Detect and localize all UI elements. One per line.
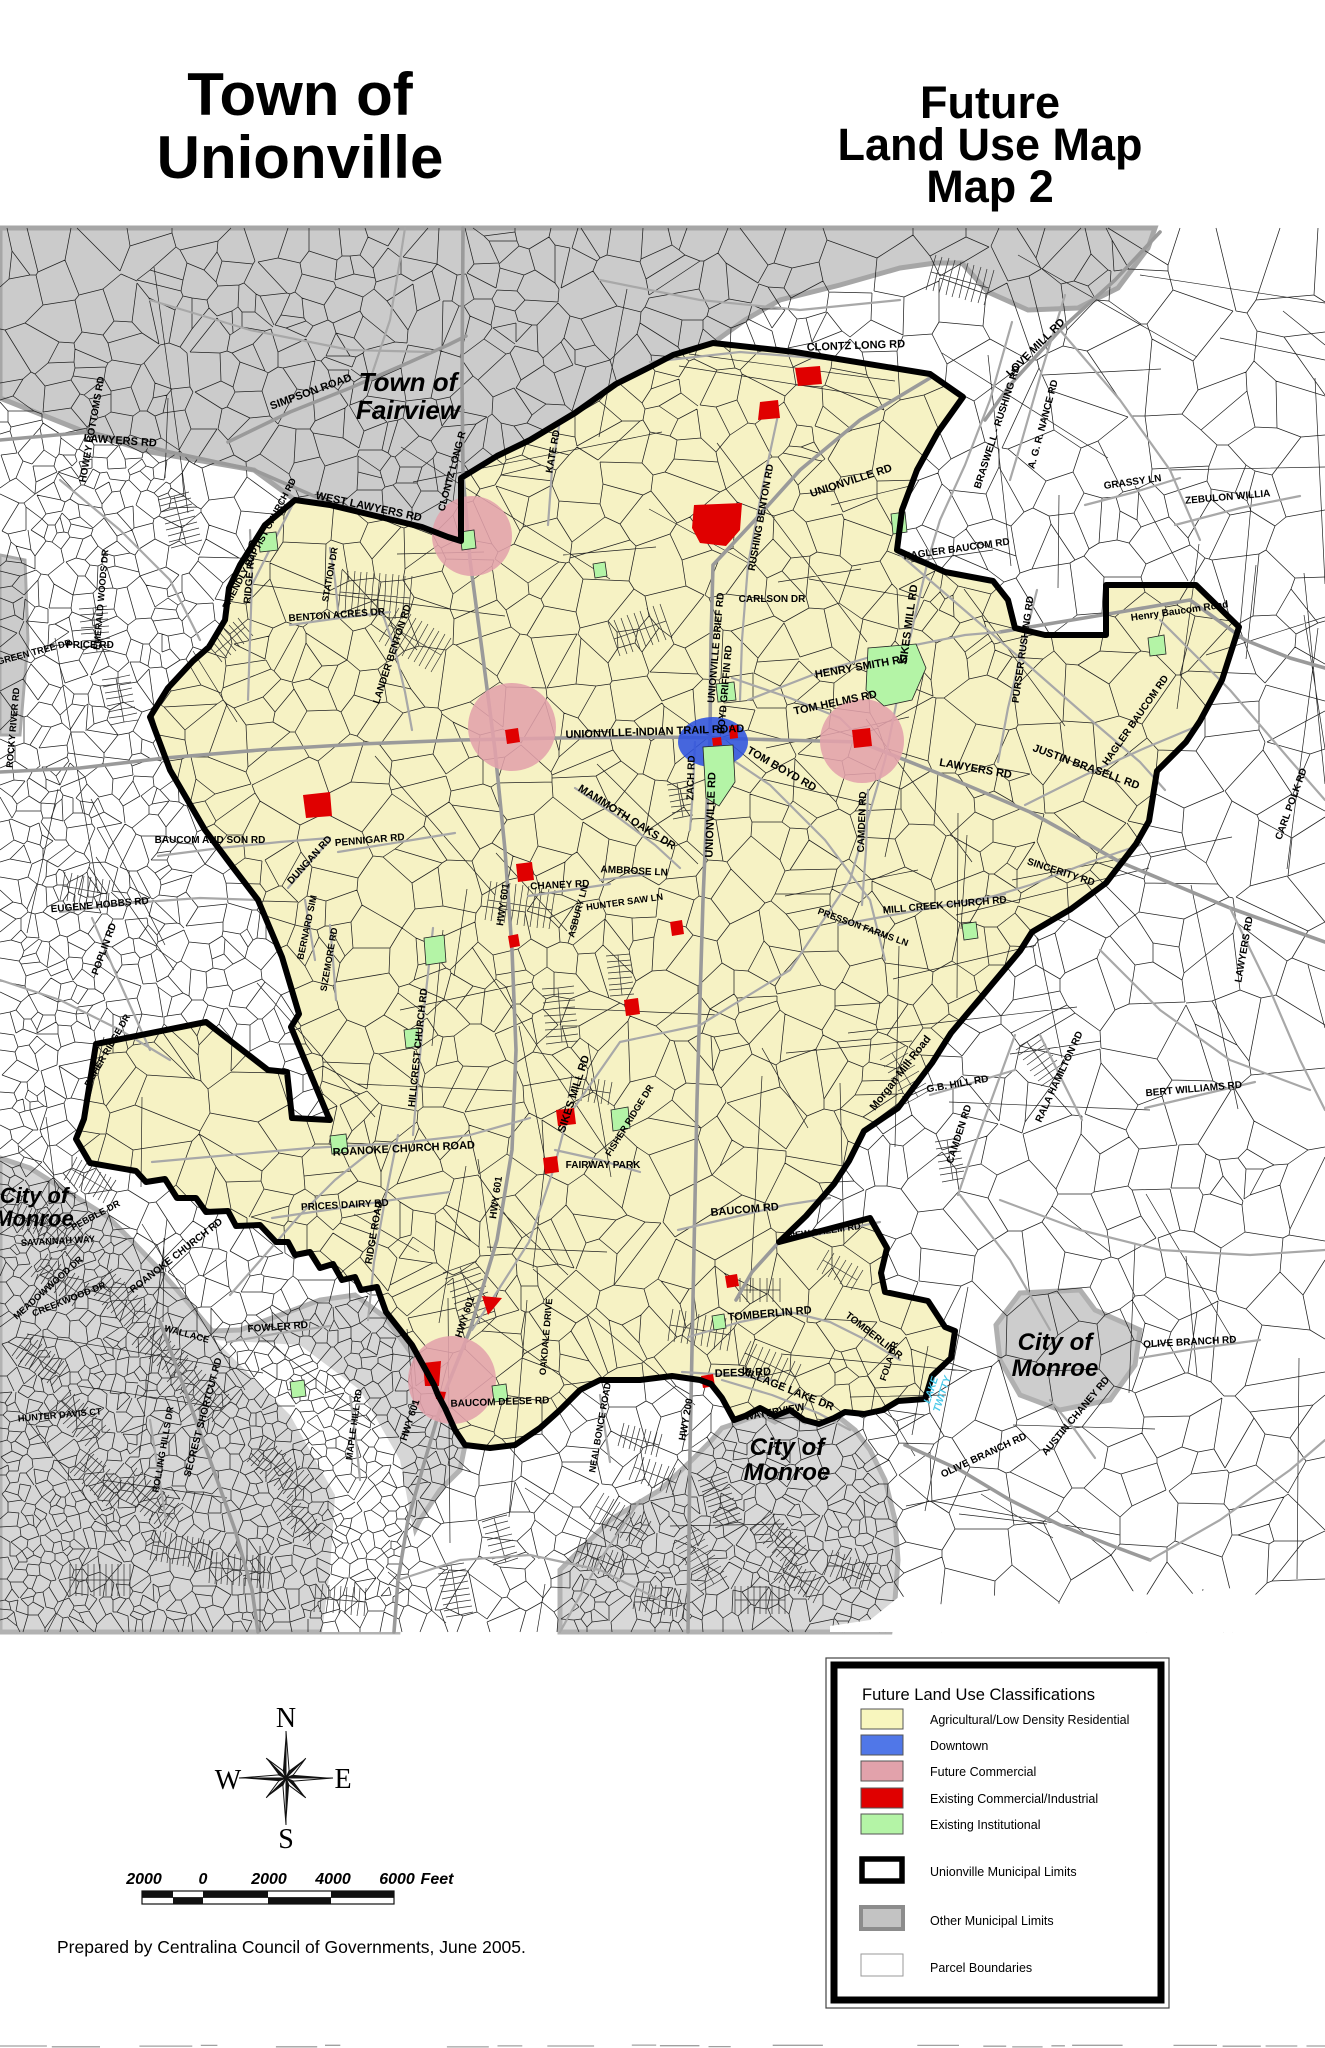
- svg-text:Town of: Town of: [359, 367, 460, 397]
- svg-text:Unionville Municipal Limits: Unionville Municipal Limits: [930, 1865, 1077, 1879]
- svg-text:Prepared by Centralina Council: Prepared by Centralina Council of Govern…: [57, 1937, 526, 1957]
- svg-text:S: S: [278, 1824, 294, 1855]
- svg-text:Fairview: Fairview: [356, 395, 462, 425]
- svg-text:Existing Institutional: Existing Institutional: [930, 1818, 1040, 1832]
- svg-text:Future Commercial: Future Commercial: [930, 1765, 1036, 1779]
- svg-text:Monroe: Monroe: [1012, 1355, 1099, 1382]
- svg-text:PRICE RD: PRICE RD: [66, 640, 114, 651]
- svg-text:City of: City of: [1018, 1329, 1095, 1356]
- svg-text:Map 2: Map 2: [926, 161, 1054, 212]
- svg-text:Monroe: Monroe: [0, 1206, 74, 1231]
- svg-text:W: W: [215, 1765, 242, 1796]
- svg-text:2000: 2000: [250, 1871, 287, 1888]
- svg-text:CARLSON DR: CARLSON DR: [739, 594, 806, 605]
- svg-text:N: N: [276, 1703, 296, 1734]
- svg-text:Parcel Boundaries: Parcel Boundaries: [930, 1961, 1032, 1975]
- svg-text:Future Land Use Classification: Future Land Use Classifications: [862, 1686, 1095, 1704]
- svg-text:City of: City of: [0, 1183, 71, 1208]
- svg-text:Existing Commercial/Industrial: Existing Commercial/Industrial: [930, 1792, 1098, 1806]
- svg-text:Downtown: Downtown: [930, 1739, 988, 1753]
- svg-text:Town of: Town of: [187, 61, 413, 128]
- svg-text:4000: 4000: [314, 1871, 351, 1888]
- svg-text:Unionville: Unionville: [157, 124, 444, 191]
- svg-text:City of: City of: [750, 1434, 827, 1461]
- svg-text:CAMDEN RD: CAMDEN RD: [856, 791, 869, 852]
- svg-text:Feet: Feet: [421, 1871, 455, 1888]
- svg-text:DEESE RD: DEESE RD: [715, 1366, 772, 1380]
- svg-text:Agricultural/Low Density Resid: Agricultural/Low Density Residential: [930, 1713, 1129, 1727]
- svg-text:E: E: [334, 1764, 351, 1795]
- svg-text:FAIRWAY PARK: FAIRWAY PARK: [566, 1160, 641, 1171]
- svg-text:ZACH RD: ZACH RD: [685, 755, 698, 800]
- svg-text:0: 0: [199, 1871, 208, 1888]
- svg-text:2000: 2000: [125, 1871, 162, 1888]
- svg-text:Monroe: Monroe: [744, 1459, 831, 1486]
- svg-text:BAUCOM AND SON RD: BAUCOM AND SON RD: [155, 835, 266, 846]
- svg-text:6000: 6000: [379, 1871, 415, 1888]
- svg-text:Other Municipal Limits: Other Municipal Limits: [930, 1914, 1054, 1928]
